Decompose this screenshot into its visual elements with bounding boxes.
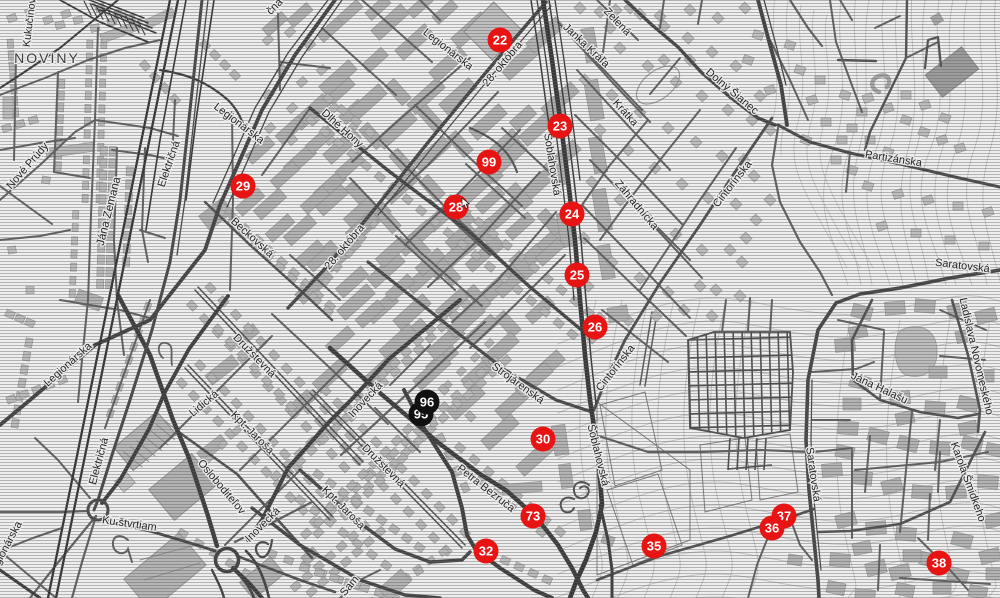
svg-text:99: 99 — [482, 155, 496, 170]
svg-text:35: 35 — [647, 539, 661, 554]
svg-text:NOVINY: NOVINY — [14, 50, 80, 66]
svg-text:38: 38 — [932, 556, 946, 571]
svg-text:73: 73 — [526, 509, 540, 524]
svg-text:36: 36 — [765, 521, 779, 536]
svg-text:22: 22 — [493, 33, 507, 48]
svg-text:28: 28 — [449, 200, 463, 215]
svg-text:23: 23 — [553, 119, 567, 134]
svg-text:29: 29 — [236, 179, 250, 194]
svg-text:30: 30 — [536, 432, 550, 447]
svg-text:25: 25 — [570, 268, 584, 283]
svg-text:26: 26 — [588, 320, 602, 335]
svg-text:24: 24 — [565, 207, 580, 222]
svg-text:96: 96 — [420, 395, 434, 410]
svg-text:32: 32 — [479, 544, 493, 559]
